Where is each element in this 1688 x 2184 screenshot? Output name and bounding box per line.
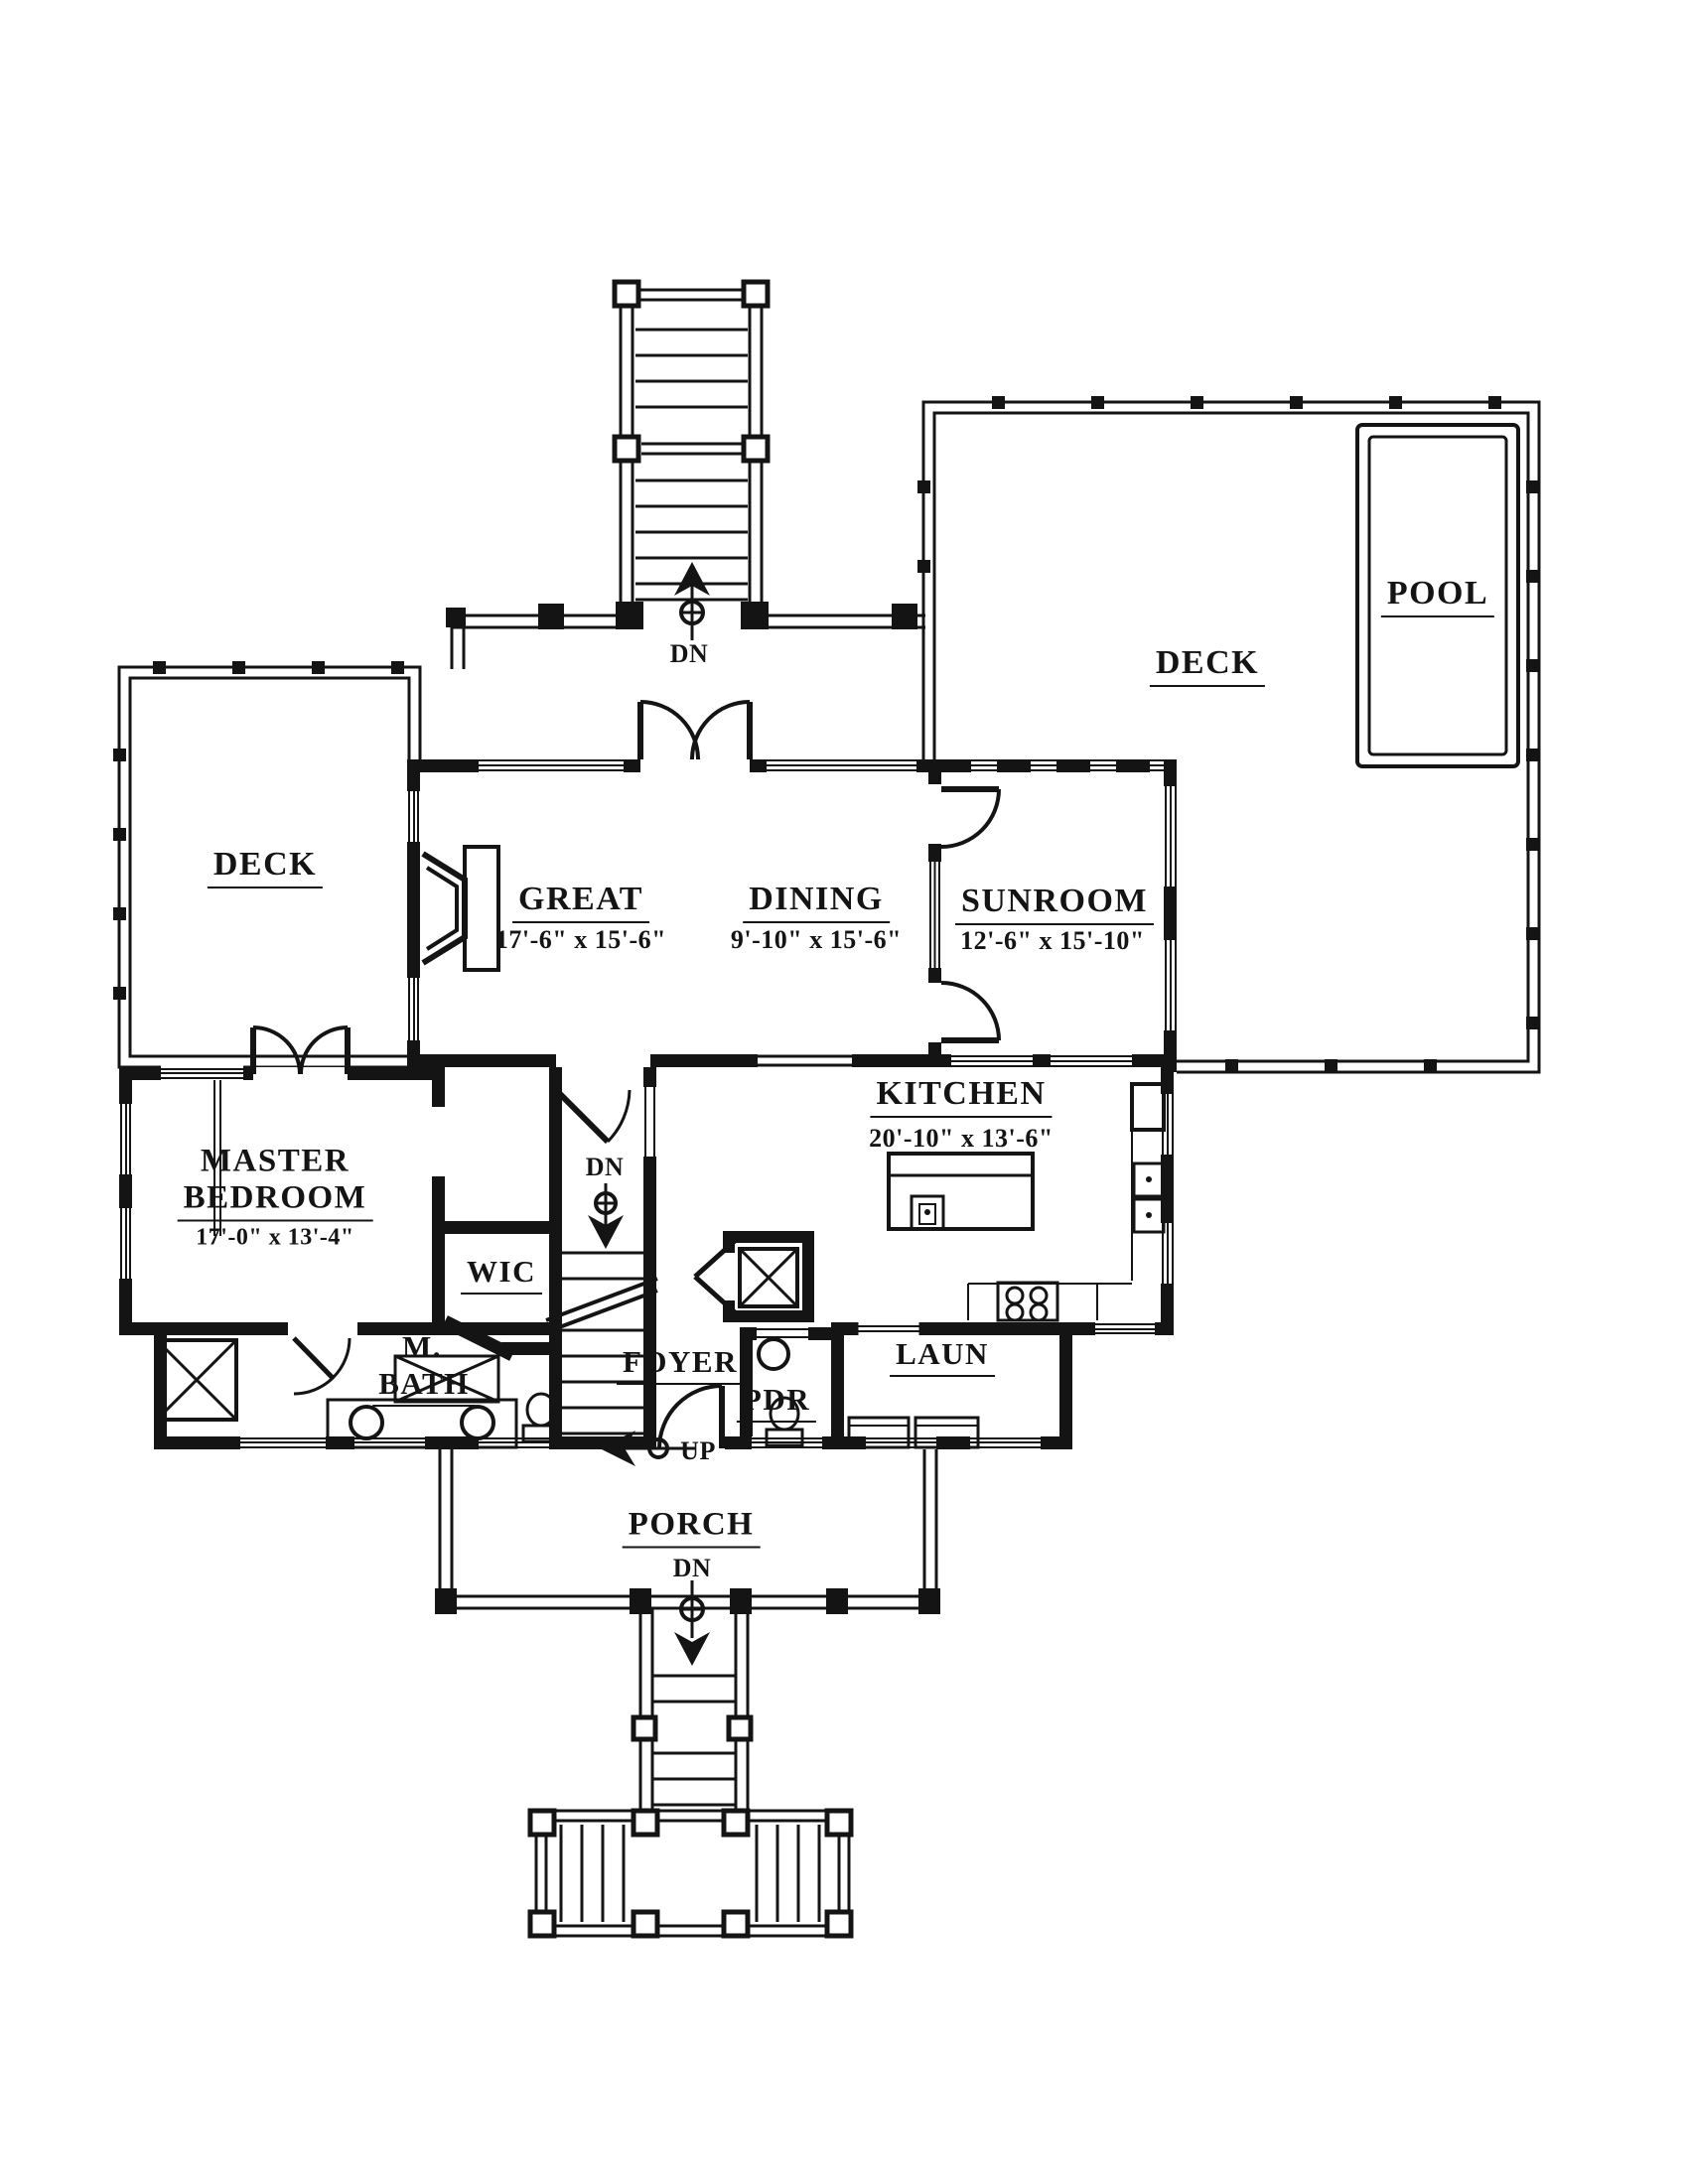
floorplan-page: POOL DECK DECK GREAT 17'-6" x 15'-6" DIN… <box>0 0 1688 2184</box>
window-great-west-2 <box>405 978 422 1040</box>
room-dims-master: 17'-0" x 13'-4" <box>196 1225 353 1252</box>
room-label-pdr: PDR <box>737 1382 816 1418</box>
room-label-porch: PORCH <box>623 1507 761 1544</box>
window-master-west-2 <box>117 1208 134 1279</box>
window-top-1 <box>479 757 624 774</box>
window-top-2 <box>767 757 916 774</box>
room-label-wic: WIC <box>461 1254 542 1290</box>
room-label-dining: DINING <box>743 881 890 918</box>
room-label-pool: POOL <box>1381 575 1494 613</box>
room-dims-great: 17'-6" x 15'-6" <box>495 925 666 955</box>
room-label-kitchen: KITCHEN <box>870 1075 1052 1113</box>
window-bath-south-1 <box>240 1434 326 1451</box>
room-label-laun: LAUN <box>890 1336 995 1372</box>
window-great-west-1 <box>405 791 422 842</box>
lower-stair <box>633 1608 751 1817</box>
window-south-2 <box>752 1434 822 1451</box>
window-laundry-south-2 <box>970 1434 1041 1451</box>
room-label-mbath-line1: M. <box>402 1329 442 1365</box>
lower-stair-treads <box>652 1676 736 1805</box>
annotation-dn-interior: DN <box>586 1153 625 1182</box>
room-label-deck-right: DECK <box>1150 644 1265 682</box>
room-label-great: GREAT <box>512 881 649 918</box>
room-dims-dining: 9'-10" x 15'-6" <box>731 925 902 955</box>
room-label-deck-left: DECK <box>208 846 323 884</box>
annotation-dn-porch: DN <box>673 1554 712 1583</box>
sunroom-bottom-wall <box>933 1054 1177 1067</box>
room-dims-kitchen: 20'-10" x 13'-6" <box>869 1124 1054 1154</box>
landing-boards <box>561 1825 819 1922</box>
window-kitchen-right-1 <box>1159 1094 1176 1155</box>
upper-stair-treads <box>635 330 748 600</box>
arrow-down-porch-stair <box>674 1580 710 1666</box>
room-label-master-line2: BEDROOM <box>178 1180 373 1217</box>
window-sunroom-right-1 <box>1162 786 1179 887</box>
room-label-sunroom: SUNROOM <box>955 883 1154 920</box>
room-label-foyer: FOYER <box>617 1344 744 1380</box>
lower-landing <box>530 1811 851 1936</box>
room-label-mbath-line2: BATH <box>372 1366 476 1402</box>
annotation-up-foyer: UP <box>680 1436 716 1466</box>
room-label-master-line1: MASTER <box>201 1144 350 1180</box>
cased-opening-laundry <box>856 1321 921 1336</box>
cased-opening-pdr <box>757 1326 808 1341</box>
annotation-dn-top: DN <box>670 639 709 669</box>
floorplan-drawing <box>0 0 1688 2184</box>
window-sunroom-right-2 <box>1162 940 1179 1030</box>
window-master-west-1 <box>117 1104 134 1174</box>
window-master-top <box>161 1065 243 1082</box>
room-dims-sunroom: 12'-6" x 15'-10" <box>960 926 1145 956</box>
window-kitchen-south <box>1095 1320 1155 1337</box>
french-door-great-deck <box>640 702 750 759</box>
